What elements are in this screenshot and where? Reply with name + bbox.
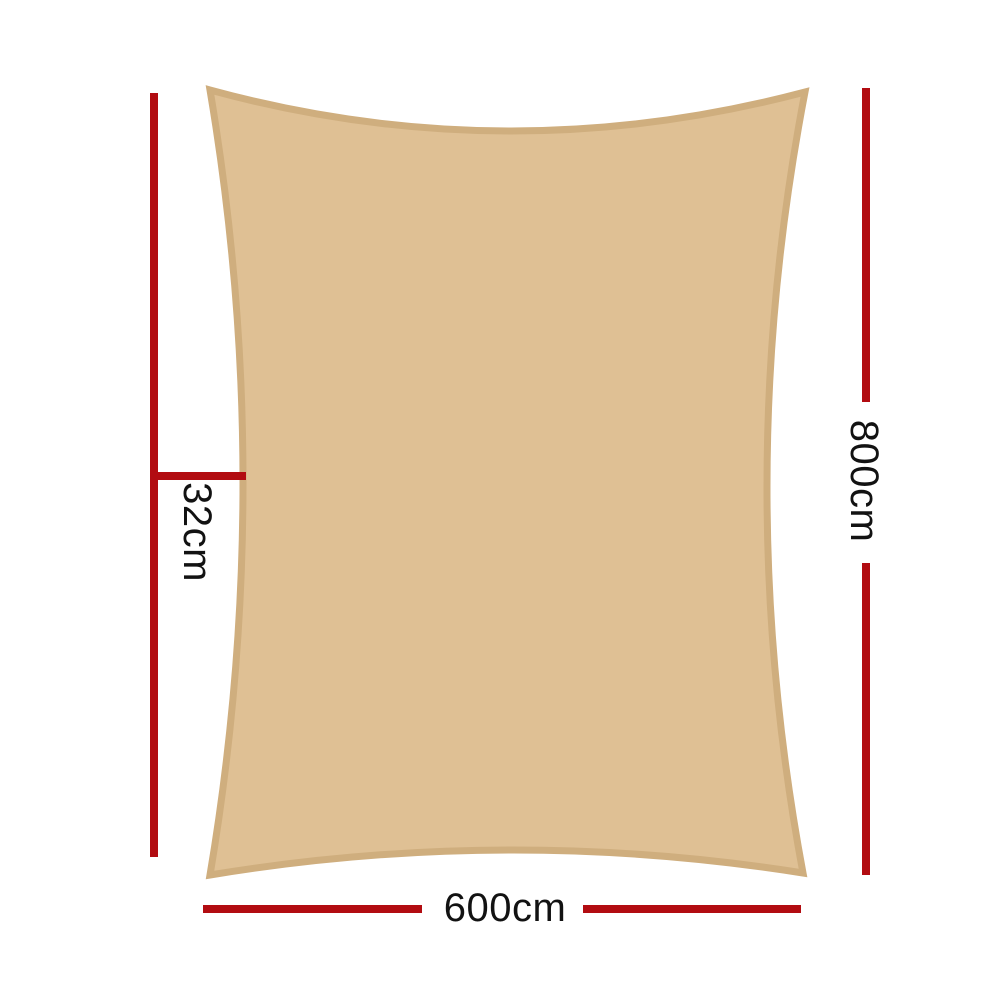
shade-sail-shape bbox=[210, 90, 805, 875]
offset-dimension-tick bbox=[150, 472, 246, 480]
width-dimension-line-left bbox=[203, 905, 422, 913]
width-dimension-line-right bbox=[583, 905, 801, 913]
shade-sail-dimension-diagram: 32cm 800cm 600cm bbox=[0, 0, 1000, 1000]
height-dimension-label: 800cm bbox=[844, 420, 884, 543]
height-dimension-line-top bbox=[862, 88, 870, 402]
offset-dimension-label: 32cm bbox=[177, 482, 217, 582]
height-dimension-line-bottom bbox=[862, 563, 870, 875]
width-dimension-label: 600cm bbox=[444, 888, 567, 928]
